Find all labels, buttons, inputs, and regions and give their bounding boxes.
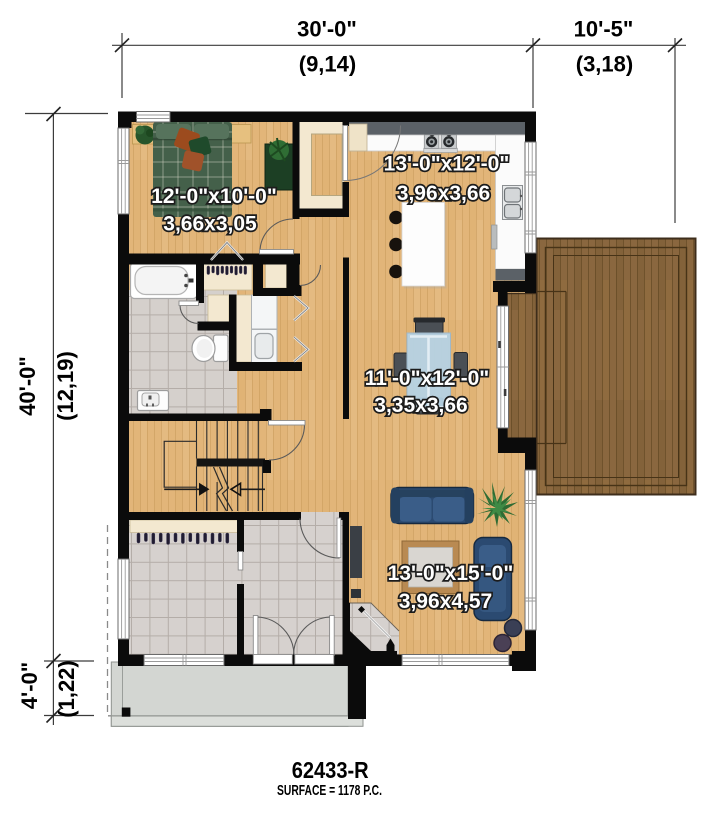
svg-text:11'-0"x12'-0": 11'-0"x12'-0": [365, 367, 489, 390]
svg-text:12'-0"x10'-0": 12'-0"x10'-0": [151, 185, 277, 208]
svg-text:3,96x3,66: 3,96x3,66: [397, 182, 490, 205]
svg-text:4'-0": 4'-0": [17, 662, 42, 709]
svg-text:30'-0": 30'-0": [297, 17, 357, 42]
svg-text:(12,19): (12,19): [53, 351, 78, 421]
svg-text:13'-0"x15'-0": 13'-0"x15'-0": [388, 562, 514, 585]
svg-text:3,35x3,66: 3,35x3,66: [374, 394, 467, 417]
svg-text:(9,14): (9,14): [299, 52, 356, 77]
svg-text:62433-R: 62433-R: [292, 757, 369, 783]
svg-text:13'-0"x12'-0": 13'-0"x12'-0": [384, 153, 510, 176]
svg-text:10'-5": 10'-5": [574, 17, 634, 42]
svg-text:3,96x4,57: 3,96x4,57: [399, 590, 492, 613]
svg-text:40'-0": 40'-0": [15, 356, 40, 416]
svg-text:SURFACE = 1178 P.C.: SURFACE = 1178 P.C.: [277, 782, 382, 799]
svg-text:(1,22): (1,22): [54, 660, 79, 717]
svg-text:(3,18): (3,18): [576, 52, 633, 77]
svg-text:3,66x3,05: 3,66x3,05: [163, 213, 257, 236]
